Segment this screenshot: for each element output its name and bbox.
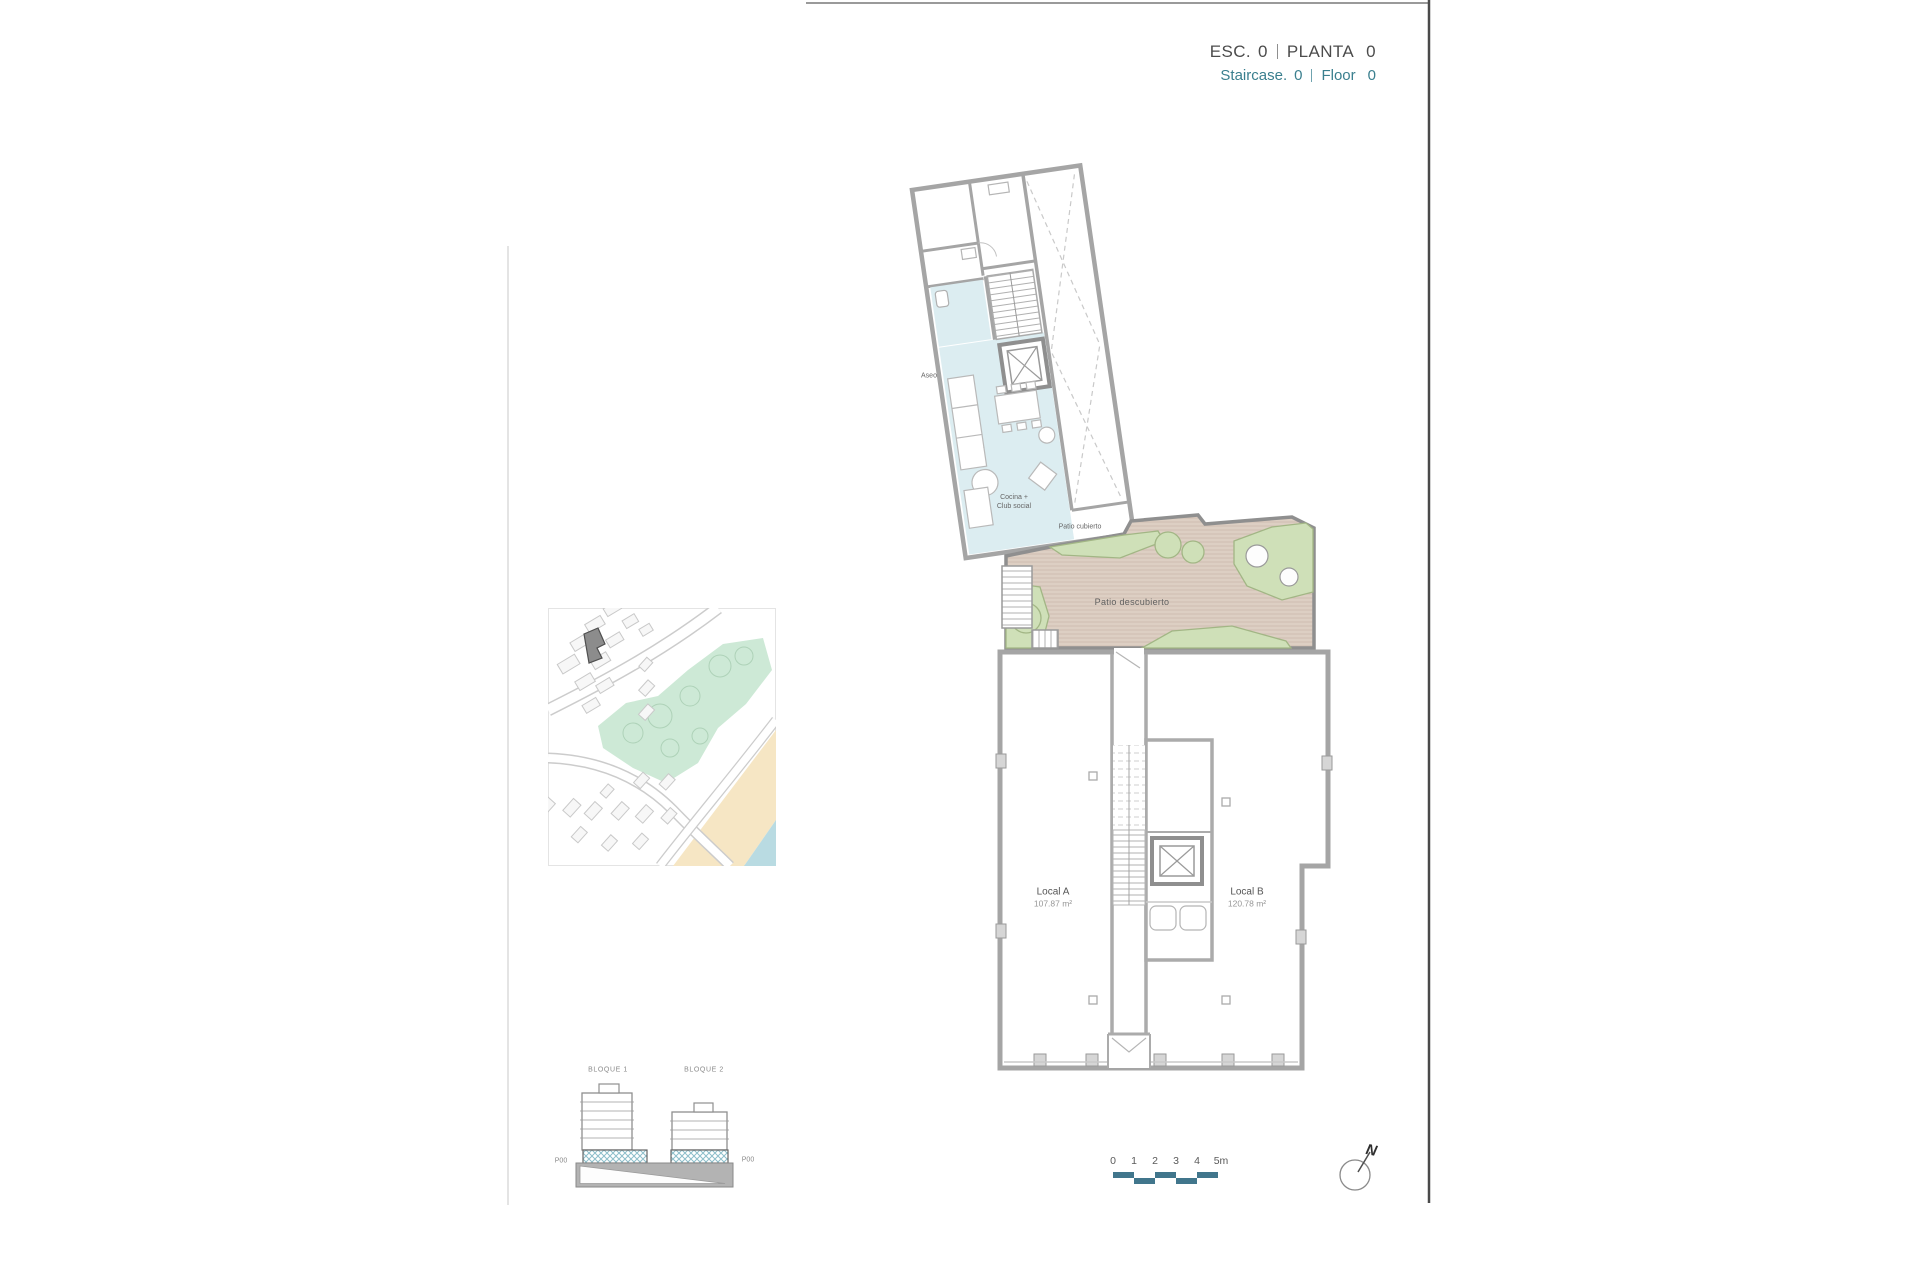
scale-bar-segment (1197, 1172, 1218, 1178)
entrance-recess (1108, 1034, 1150, 1068)
elevation-tower-2 (670, 1103, 729, 1150)
header-divider (1277, 44, 1278, 59)
block-elevation (550, 1060, 800, 1220)
lower-block (996, 648, 1332, 1068)
patio-table (1246, 545, 1268, 567)
p00-right-label: P00 (742, 1157, 754, 1164)
scale-tick-0: 0 (1110, 1155, 1116, 1167)
planta-value: 0 (1366, 42, 1376, 61)
scale-bar-segment (1155, 1172, 1176, 1178)
wc-fixture (1150, 906, 1176, 930)
planta-label: PLANTA (1287, 42, 1354, 61)
site-location-map (548, 608, 776, 866)
patio-table (1280, 568, 1298, 586)
elevation-highlight-floor-b2 (671, 1150, 728, 1163)
cocina-line1: Cocina + (997, 493, 1031, 502)
esc-value: 0 (1258, 42, 1268, 61)
upper-elevator (999, 339, 1049, 393)
scale-bar-segment (1134, 1178, 1155, 1184)
aseo-label: Aseo (921, 372, 937, 381)
corridor-door-gap (1114, 648, 1144, 656)
local-a-name: Local A (1034, 887, 1072, 899)
elevation-highlight-floor-b1 (583, 1150, 647, 1163)
patio-stair-lower (1032, 630, 1058, 648)
patio-cubierto-label: Patio cubierto (1059, 523, 1102, 532)
cocina-club-label: Cocina + Club social (997, 493, 1031, 511)
esc-label: ESC. (1210, 42, 1251, 61)
elevation-base (576, 1163, 733, 1187)
header-divider-teal (1311, 69, 1312, 82)
local-b-area: 120.78 m² (1228, 899, 1266, 910)
toilet-fixture (935, 290, 949, 308)
elevation-tower-1 (580, 1084, 634, 1150)
scale-tick-5: 5m (1214, 1155, 1229, 1167)
aseo-room-fill (930, 280, 991, 347)
local-a-area: 107.87 m² (1034, 899, 1072, 910)
cocina-line2: Club social (997, 502, 1031, 511)
patio-descubierto-label: Patio descubierto (1095, 597, 1170, 607)
scale-bar-segment (1176, 1178, 1197, 1184)
bloque2-label: BLOQUE 2 (684, 1067, 724, 1074)
staircase-label: Staircase. (1220, 67, 1287, 84)
wc-fixture (1180, 906, 1206, 930)
lower-elevator (1152, 838, 1202, 884)
floor-value: 0 (1368, 67, 1376, 84)
scale-tick-2: 2 (1152, 1155, 1158, 1167)
title-block: ESC.0PLANTA0 Staircase.0Floor0 (1210, 41, 1376, 86)
scale-tick-4: 4 (1194, 1155, 1200, 1167)
floor-label: Floor (1321, 67, 1355, 84)
staircase-value: 0 (1294, 67, 1302, 84)
scale-tick-1: 1 (1131, 1155, 1137, 1167)
patio-stair (1002, 566, 1032, 628)
local-a-label: Local A 107.87 m² (1034, 887, 1072, 910)
local-b-label: Local B 120.78 m² (1228, 887, 1266, 910)
scale-bar-segment (1113, 1172, 1134, 1178)
p00-left-label: P00 (555, 1158, 567, 1165)
bloque1-label: BLOQUE 1 (588, 1067, 628, 1074)
title-line-en: Staircase.0Floor0 (1210, 66, 1376, 86)
scale-tick-3: 3 (1173, 1155, 1179, 1167)
local-b-name: Local B (1228, 887, 1266, 899)
title-line-es: ESC.0PLANTA0 (1210, 41, 1376, 64)
floor-plan-canvas (0, 0, 1920, 1280)
